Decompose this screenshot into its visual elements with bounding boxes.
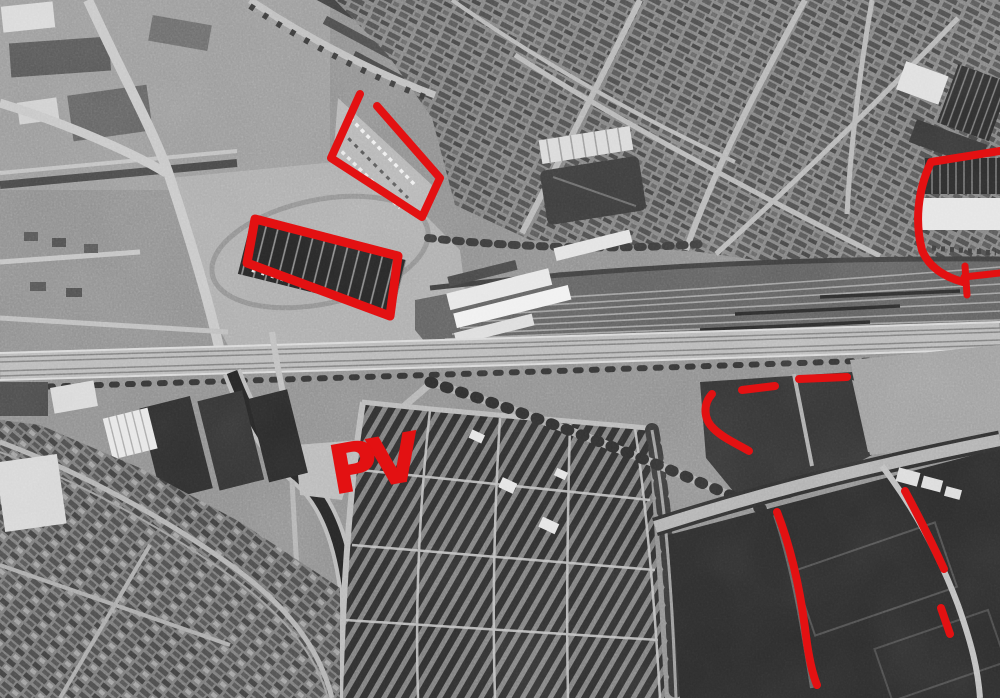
red-edge-line-factory-right bbox=[964, 273, 1000, 277]
red-dash-long bbox=[799, 377, 847, 379]
aerial-photo: PV bbox=[0, 0, 1000, 698]
red-tick-factory-right bbox=[965, 266, 967, 295]
photo-base: PV bbox=[0, 0, 1000, 698]
red-dash-short bbox=[742, 386, 775, 390]
